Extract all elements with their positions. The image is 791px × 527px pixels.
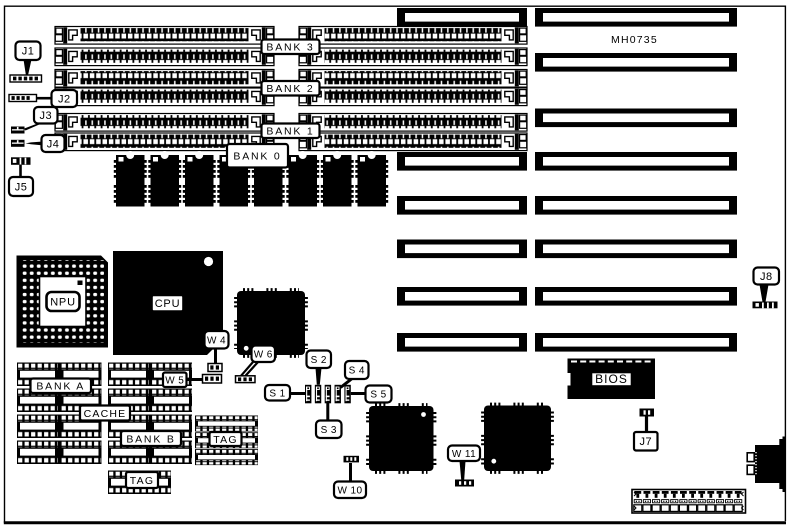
svg-text:NPU: NPU <box>50 296 76 308</box>
svg-text:J3: J3 <box>39 110 52 122</box>
svg-text:BANK 3: BANK 3 <box>266 42 314 54</box>
svg-text:W 6: W 6 <box>254 349 273 360</box>
svg-text:CPU: CPU <box>155 298 181 310</box>
svg-text:J8: J8 <box>760 271 773 283</box>
svg-text:BIOS: BIOS <box>595 372 628 386</box>
svg-text:TAG: TAG <box>213 434 237 446</box>
svg-text:J4: J4 <box>47 138 60 150</box>
svg-text:CACHE: CACHE <box>84 408 127 420</box>
svg-text:BANK 0: BANK 0 <box>233 151 281 163</box>
svg-text:S 1: S 1 <box>269 388 285 399</box>
svg-text:W 5: W 5 <box>165 375 184 386</box>
svg-text:J2: J2 <box>58 93 71 105</box>
svg-text:S 4: S 4 <box>349 366 365 377</box>
svg-text:BANK B: BANK B <box>126 433 175 445</box>
svg-text:W 10: W 10 <box>338 485 363 496</box>
svg-text:W 11: W 11 <box>452 449 476 460</box>
svg-text:J7: J7 <box>639 436 652 448</box>
svg-text:S 5: S 5 <box>370 390 386 401</box>
svg-text:J5: J5 <box>15 181 28 193</box>
svg-text:J1: J1 <box>22 46 35 58</box>
svg-text:TAG: TAG <box>130 475 154 487</box>
svg-text:BANK 1: BANK 1 <box>266 126 314 138</box>
svg-text:BANK 2: BANK 2 <box>266 83 314 95</box>
svg-text:W 4: W 4 <box>207 335 226 346</box>
svg-text:BANK A: BANK A <box>36 381 85 393</box>
svg-text:MH0735: MH0735 <box>611 34 658 46</box>
svg-text:S 2: S 2 <box>311 355 327 366</box>
svg-text:S 3: S 3 <box>321 425 337 436</box>
